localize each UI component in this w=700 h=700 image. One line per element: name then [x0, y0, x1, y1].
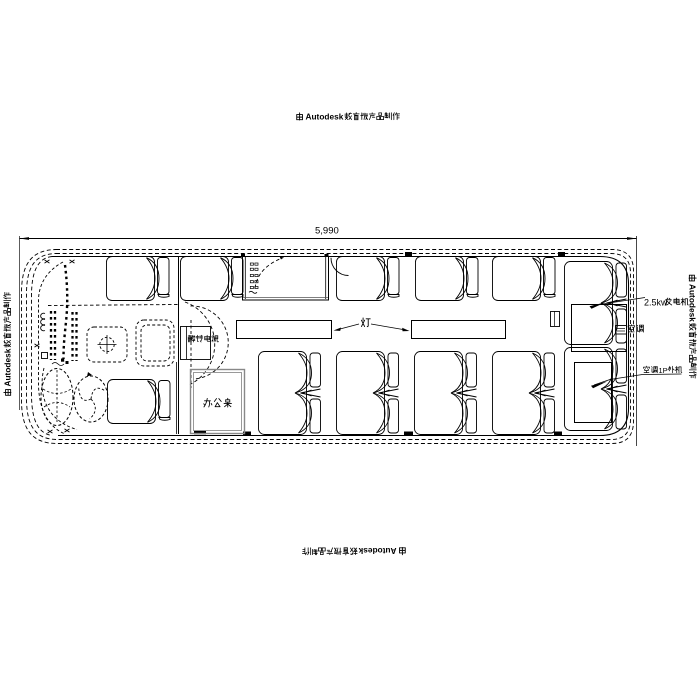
svg-text:2.5kw: 2.5kw [644, 298, 668, 308]
svg-text:5,990: 5,990 [315, 226, 339, 237]
svg-text:Autodesk: Autodesk [358, 546, 396, 556]
svg-text:Autodesk: Autodesk [687, 284, 697, 322]
svg-text:Autodesk: Autodesk [3, 348, 13, 386]
svg-text:Autodesk: Autodesk [306, 112, 344, 122]
svg-text:1P: 1P [659, 366, 668, 375]
